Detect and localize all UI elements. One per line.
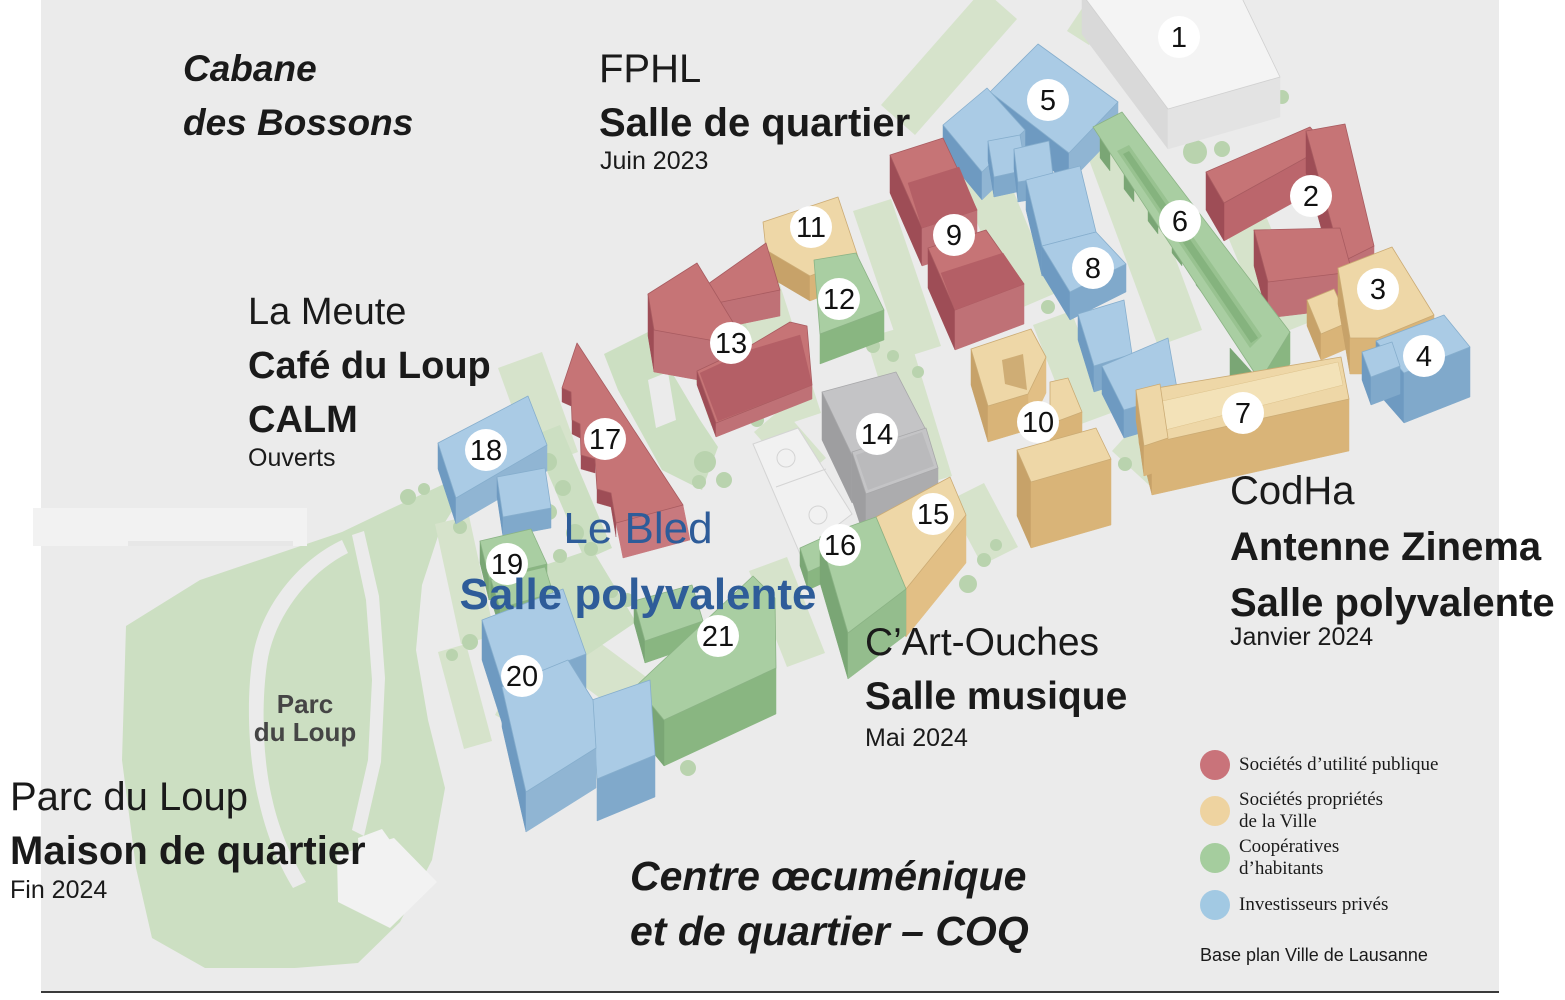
svg-text:2: 2 bbox=[1303, 181, 1319, 213]
svg-text:12: 12 bbox=[823, 284, 855, 316]
svg-text:15: 15 bbox=[917, 499, 949, 531]
svg-text:8: 8 bbox=[1085, 253, 1101, 285]
svg-text:11: 11 bbox=[796, 212, 826, 244]
svg-text:9: 9 bbox=[946, 220, 962, 252]
svg-text:3: 3 bbox=[1370, 274, 1386, 306]
svg-text:7: 7 bbox=[1235, 398, 1251, 430]
svg-text:17: 17 bbox=[589, 424, 621, 456]
svg-text:10: 10 bbox=[1022, 407, 1054, 439]
svg-text:14: 14 bbox=[861, 419, 893, 451]
svg-text:1: 1 bbox=[1171, 22, 1187, 54]
svg-text:20: 20 bbox=[506, 661, 538, 693]
svg-text:4: 4 bbox=[1416, 341, 1432, 373]
svg-text:5: 5 bbox=[1040, 85, 1056, 117]
svg-text:6: 6 bbox=[1172, 206, 1188, 238]
svg-text:13: 13 bbox=[715, 328, 747, 360]
